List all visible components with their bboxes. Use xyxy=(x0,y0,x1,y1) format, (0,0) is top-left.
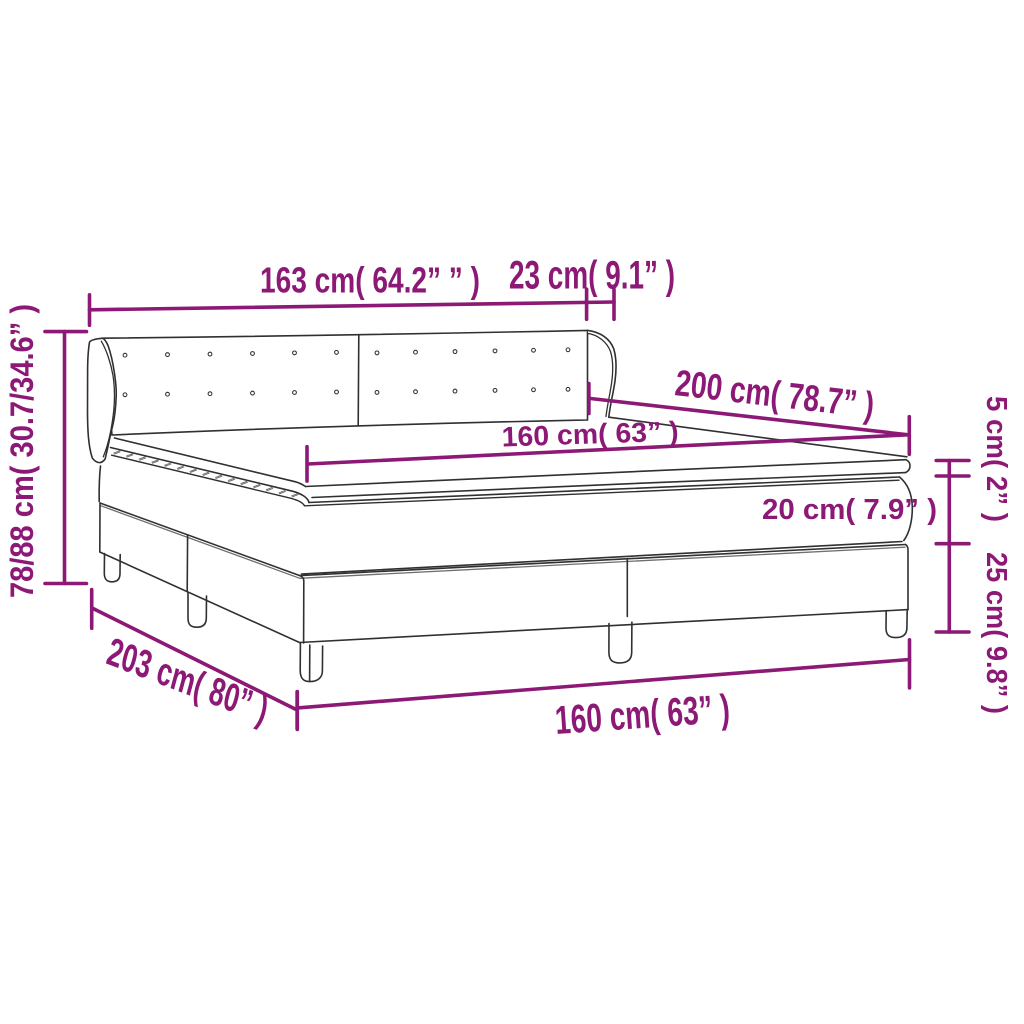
svg-text:25 cm( 9.8” ): 25 cm( 9.8” ) xyxy=(980,552,1012,714)
svg-text:23 cm( 9.1” ): 23 cm( 9.1” ) xyxy=(509,254,675,298)
svg-text:160 cm( 63” ): 160 cm( 63” ) xyxy=(501,416,679,453)
svg-text:78/88 cm( 30.7/34.6” ): 78/88 cm( 30.7/34.6” ) xyxy=(4,304,40,598)
svg-text:163 cm( 64.2” ” ): 163 cm( 64.2” ” ) xyxy=(260,260,480,301)
svg-text:5 cm( 2” ): 5 cm( 2” ) xyxy=(980,396,1012,522)
svg-text:20 cm( 7.9” ): 20 cm( 7.9” ) xyxy=(762,494,937,526)
